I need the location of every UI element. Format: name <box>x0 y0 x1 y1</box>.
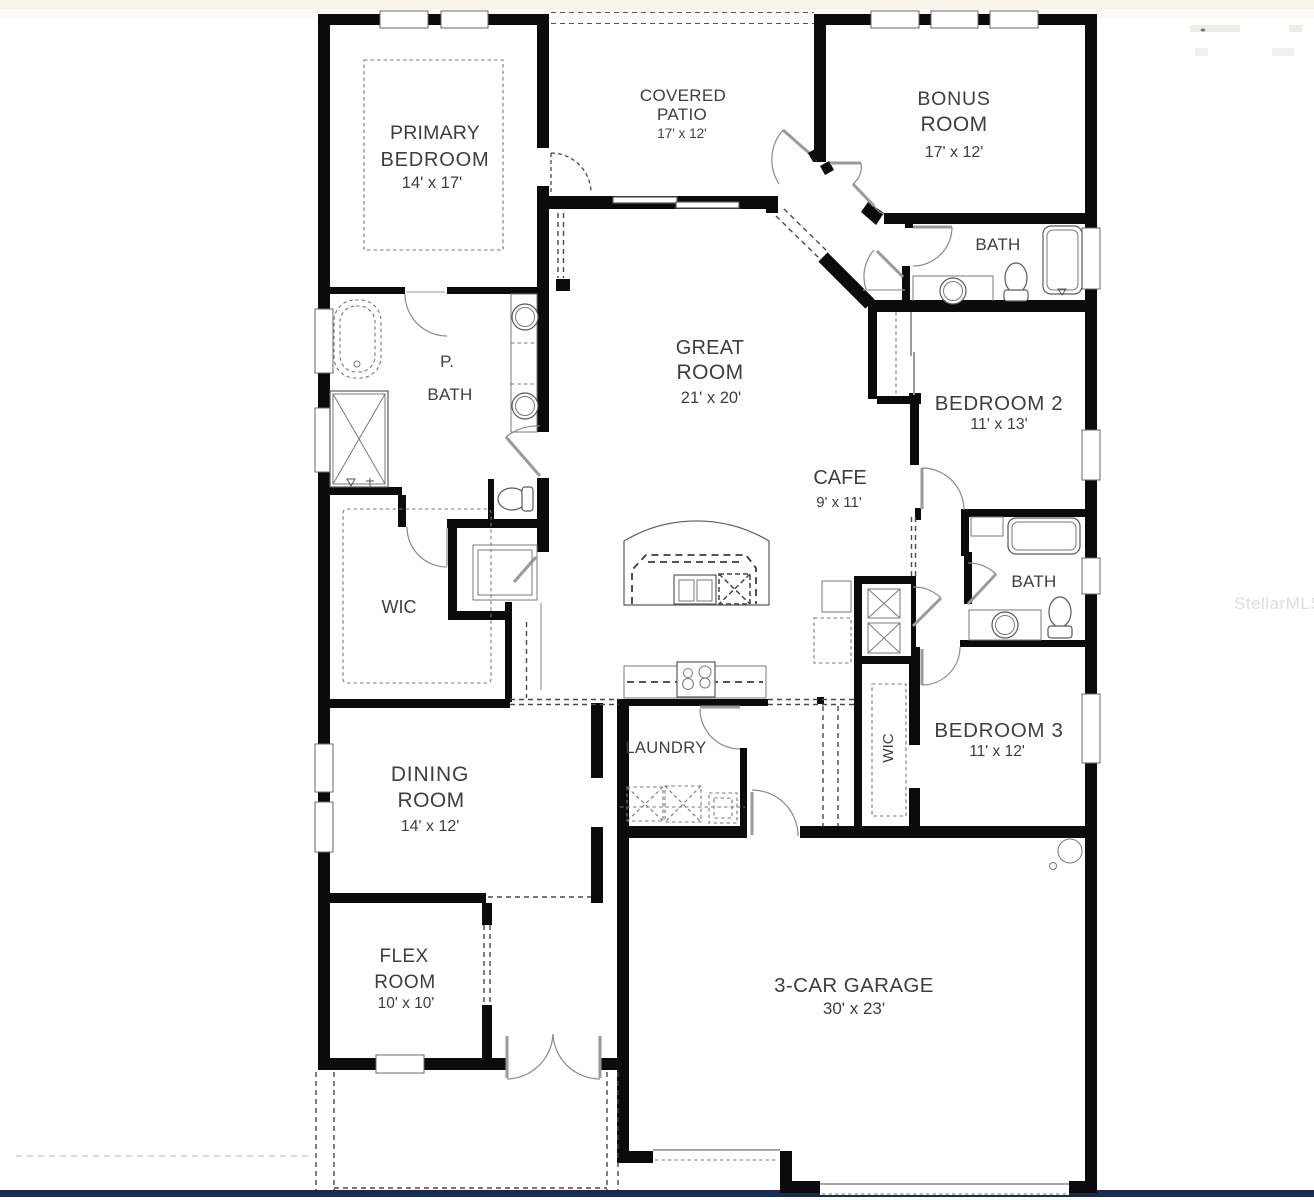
svg-text:PATIO: PATIO <box>657 105 707 124</box>
svg-text:BONUS: BONUS <box>917 88 990 110</box>
svg-text:30' x 23': 30' x 23' <box>823 999 885 1018</box>
svg-text:9' x 11': 9' x 11' <box>816 494 862 511</box>
svg-text:BATH: BATH <box>427 385 472 404</box>
svg-text:BATH: BATH <box>975 235 1020 254</box>
svg-text:FLEX: FLEX <box>379 946 428 967</box>
svg-text:3-CAR GARAGE: 3-CAR GARAGE <box>774 974 934 997</box>
svg-text:PRIMARY: PRIMARY <box>390 122 480 144</box>
svg-text:WIC: WIC <box>880 733 897 762</box>
svg-text:P.: P. <box>440 352 454 371</box>
svg-text:WIC: WIC <box>382 597 417 617</box>
svg-text:ROOM: ROOM <box>921 113 988 136</box>
svg-text:LAUNDRY: LAUNDRY <box>625 739 706 757</box>
svg-text:COVERED: COVERED <box>640 86 726 105</box>
svg-text:BEDROOM 2: BEDROOM 2 <box>935 392 1063 415</box>
svg-text:21' x 20': 21' x 20' <box>681 389 741 407</box>
svg-text:BEDROOM: BEDROOM <box>381 149 490 171</box>
svg-text:14' x 12': 14' x 12' <box>401 818 460 835</box>
svg-text:14' x 17': 14' x 17' <box>402 174 462 192</box>
svg-text:ROOM: ROOM <box>374 972 436 993</box>
svg-text:CAFE: CAFE <box>813 467 866 489</box>
svg-text:GREAT: GREAT <box>676 337 744 359</box>
svg-text:BATH: BATH <box>1011 572 1056 591</box>
svg-text:BEDROOM 3: BEDROOM 3 <box>934 719 1063 742</box>
svg-text:17' x 12': 17' x 12' <box>925 144 984 161</box>
svg-text:ROOM: ROOM <box>398 789 465 812</box>
svg-text:DINING: DINING <box>391 763 469 786</box>
svg-text:11' x 12': 11' x 12' <box>969 743 1025 760</box>
svg-text:17' x 12': 17' x 12' <box>657 126 706 141</box>
svg-text:ROOM: ROOM <box>677 361 744 384</box>
svg-text:10' x 10': 10' x 10' <box>378 995 435 1012</box>
svg-text:11' x 13': 11' x 13' <box>970 416 1027 433</box>
svg-text:StellarMLS: StellarMLS <box>1234 594 1314 613</box>
